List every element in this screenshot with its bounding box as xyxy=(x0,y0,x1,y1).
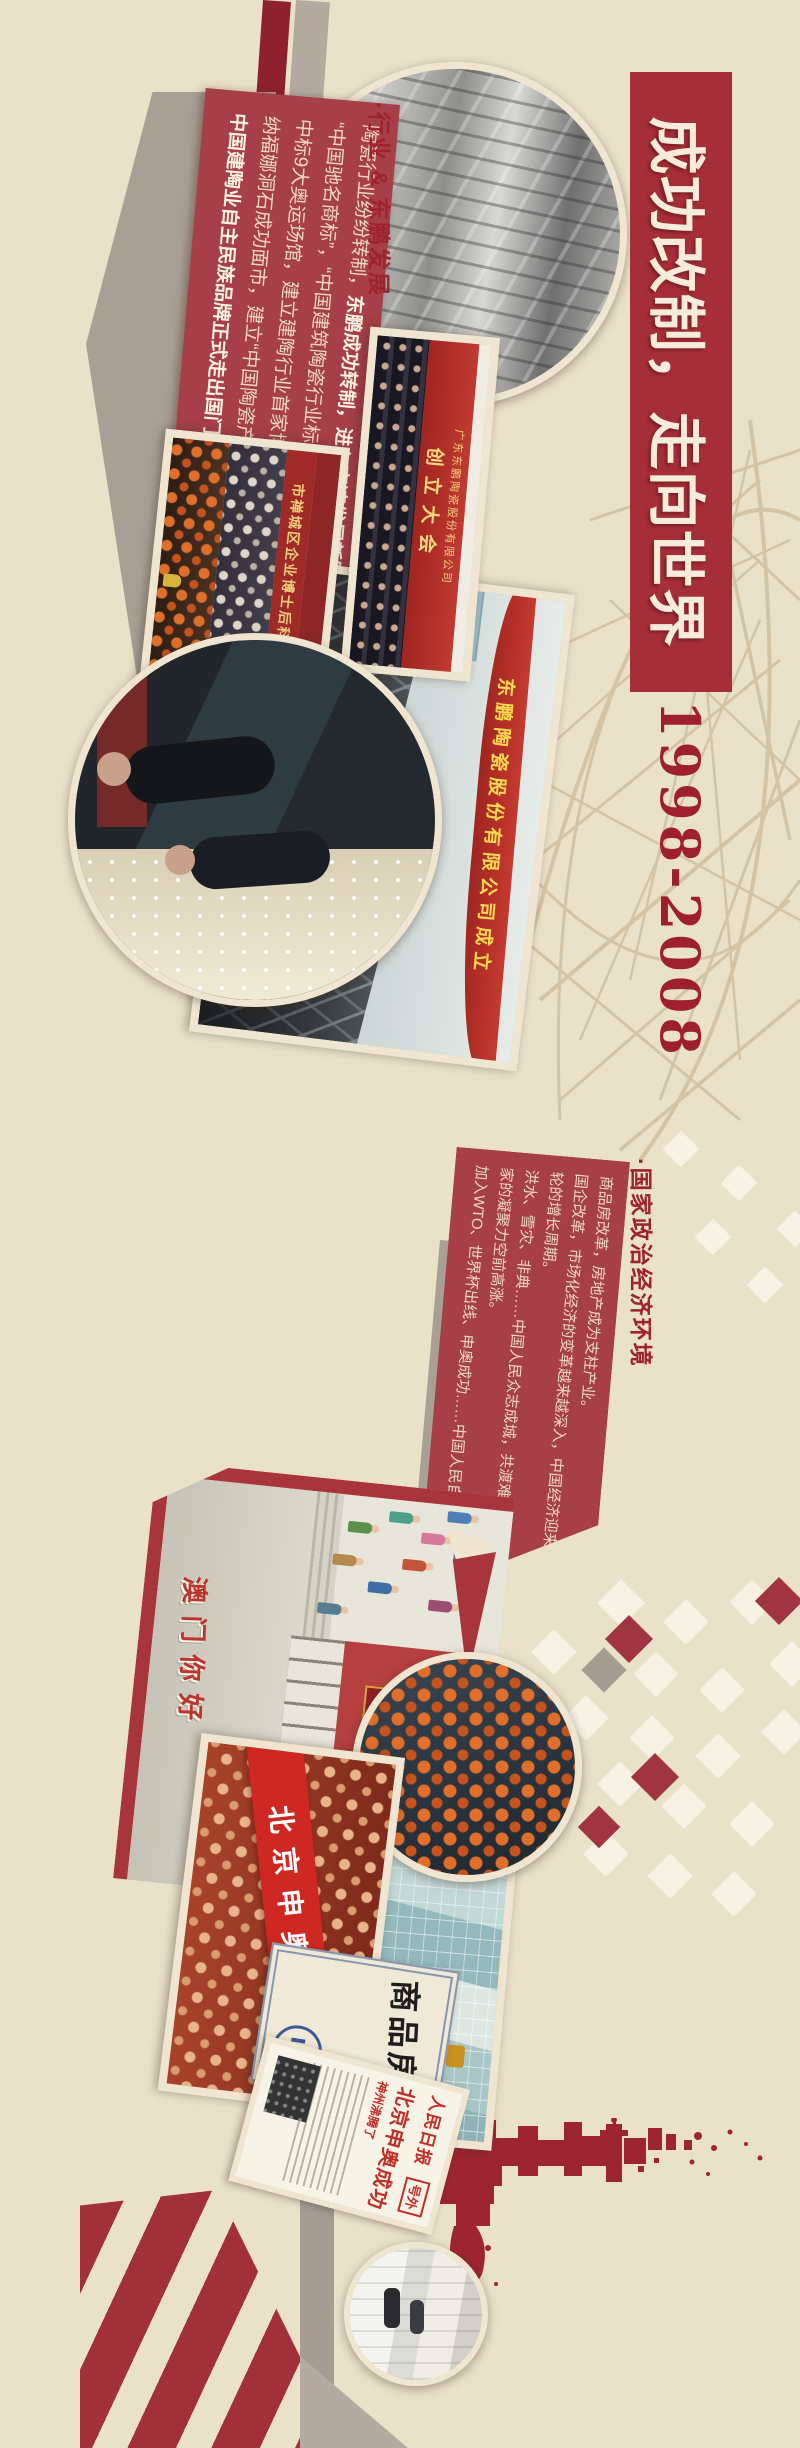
diamond xyxy=(633,1651,678,1696)
handshake-photo-content xyxy=(75,640,435,1000)
photo-showroom-circle xyxy=(344,2242,488,2386)
diamond xyxy=(777,1211,800,1248)
man-head xyxy=(165,845,195,875)
diamond xyxy=(699,1667,744,1712)
diamond xyxy=(695,1219,732,1256)
diamond xyxy=(729,1801,774,1846)
diamond xyxy=(531,1629,576,1674)
industry-section-header: ·行业 & 东鹏发展 xyxy=(368,102,398,332)
cartoon-person xyxy=(389,1511,414,1524)
diamond xyxy=(761,1709,800,1754)
poster-title: 成功改制，走向世界 xyxy=(639,116,723,647)
exhibition-poster: 陶瓷行业纷纷转制，东鹏成功转制，进入高速发展新阶段。 “中国驰名商标”，“中国建… xyxy=(0,0,800,2448)
diamond xyxy=(711,1871,756,1916)
diamond xyxy=(597,1761,642,1806)
cartoon-person xyxy=(402,1559,427,1572)
diamond-red xyxy=(755,1577,800,1625)
cartoon-person xyxy=(332,1553,357,1566)
person-silhouette xyxy=(384,2288,400,2328)
environment-section-header: ·国家政治经济环境 xyxy=(630,1158,660,1408)
man-silhouette xyxy=(189,830,332,892)
diamond xyxy=(769,1641,800,1686)
diamond xyxy=(747,1267,784,1304)
diamond xyxy=(647,1853,692,1898)
newspaper-edition-badge: 号外 xyxy=(397,2176,430,2217)
machine-cab xyxy=(446,2044,466,2067)
diamond xyxy=(661,1783,706,1828)
cartoon-person xyxy=(421,1532,446,1545)
cartoon-person xyxy=(428,1600,453,1613)
diamond xyxy=(629,1715,674,1760)
diamond xyxy=(721,1165,758,1202)
man-head xyxy=(97,752,131,786)
diamond xyxy=(663,1599,708,1644)
cartoon-person xyxy=(348,1521,373,1534)
cartoon-person xyxy=(368,1581,393,1594)
macau-street-text: 澳门你好 xyxy=(172,1576,216,1733)
cartoon-person xyxy=(447,1511,472,1524)
poster-period: 1998-2008 xyxy=(634,700,712,1020)
diamond xyxy=(597,1579,645,1627)
photo-handshake xyxy=(68,633,442,1007)
poster-title-banner: 成功改制，走向世界 xyxy=(630,72,732,692)
person-silhouette xyxy=(410,2300,424,2334)
cartoon-person xyxy=(317,1602,342,1615)
diamond xyxy=(695,1733,740,1778)
trophy-icon xyxy=(163,573,182,588)
